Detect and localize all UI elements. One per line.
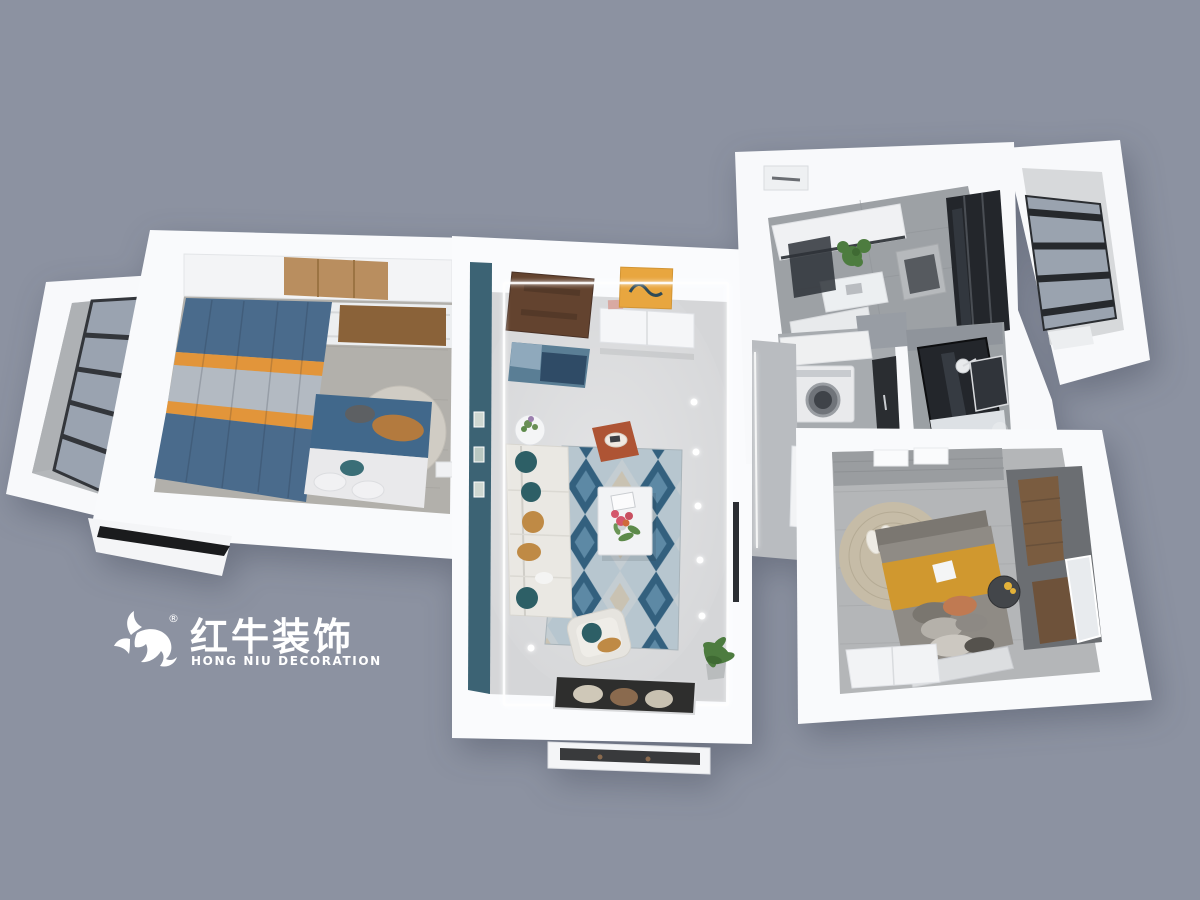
entry-doormat-inset xyxy=(554,676,696,714)
teal-accent-pillow xyxy=(340,460,364,476)
appliance-front xyxy=(904,254,940,294)
side-table xyxy=(515,415,545,445)
sectional-sofa xyxy=(506,444,572,618)
white-pillow-1 xyxy=(314,473,346,491)
plant-pot xyxy=(706,662,726,680)
white-pillow-2 xyxy=(352,481,384,499)
floorplan-render-canvas: ® 红牛装饰 HONG NIU DECORATION xyxy=(0,0,1200,900)
kitchen-sliding-door xyxy=(788,236,836,298)
curtains xyxy=(154,298,332,502)
gray-pillow xyxy=(345,405,375,423)
door-mat-light xyxy=(510,342,542,370)
vanity-flower-1 xyxy=(1004,582,1012,590)
registered-mark: ® xyxy=(168,612,179,625)
washer-door-glass xyxy=(814,391,832,409)
ceiling-light-panel-1 xyxy=(874,450,908,466)
side-table-plant-leaf-2 xyxy=(532,424,538,430)
book xyxy=(611,492,635,511)
doormat-stone-1 xyxy=(573,685,603,703)
sofa-pillow-mustard-2 xyxy=(517,543,541,561)
bathroom-window xyxy=(970,356,1008,411)
door-mat-navy xyxy=(540,352,587,385)
wall-picture-frames xyxy=(474,412,484,497)
room-master-bedroom xyxy=(88,230,468,576)
sofa-pillow-white xyxy=(535,572,553,584)
doormat-stone-2 xyxy=(610,688,638,706)
porch-dot-2 xyxy=(646,757,651,762)
room-living-dining xyxy=(452,236,752,744)
brand-name-en: HONG NIU DECORATION xyxy=(191,654,382,668)
accent-wall-teal xyxy=(468,262,492,694)
sofa-pillow-teal-2 xyxy=(521,482,541,502)
tray-item xyxy=(610,435,621,442)
coffee-table xyxy=(598,487,656,561)
brand-name-cn: 红牛装饰 xyxy=(190,615,354,659)
curtain-blue-top xyxy=(176,298,332,362)
wardrobe-wood-door xyxy=(284,257,388,300)
side-table-plant-leaf-3 xyxy=(521,426,527,432)
wall-tv xyxy=(733,502,739,602)
master-bed xyxy=(304,386,446,508)
side-table-flower xyxy=(528,416,534,422)
duct-slot xyxy=(772,178,800,180)
sofa-pillow-mustard-1 xyxy=(522,511,544,533)
doormat-stone-3 xyxy=(645,690,673,708)
sofa-pillow-teal-1 xyxy=(515,451,537,473)
kitchen-plant-dark xyxy=(852,248,860,256)
ceiling-light-panel-2 xyxy=(914,448,948,464)
entry-porch xyxy=(548,742,710,774)
floorplan-scene: ® 红牛装饰 HONG NIU DECORATION xyxy=(0,0,1200,900)
porch-dot-1 xyxy=(598,755,603,760)
ceiling-wood-inset xyxy=(338,305,446,346)
sofa-pillow-teal-3 xyxy=(516,587,538,609)
vanity-flower-2 xyxy=(1010,588,1016,594)
room-second-bedroom xyxy=(796,428,1152,724)
washer-control-strip xyxy=(795,370,851,377)
